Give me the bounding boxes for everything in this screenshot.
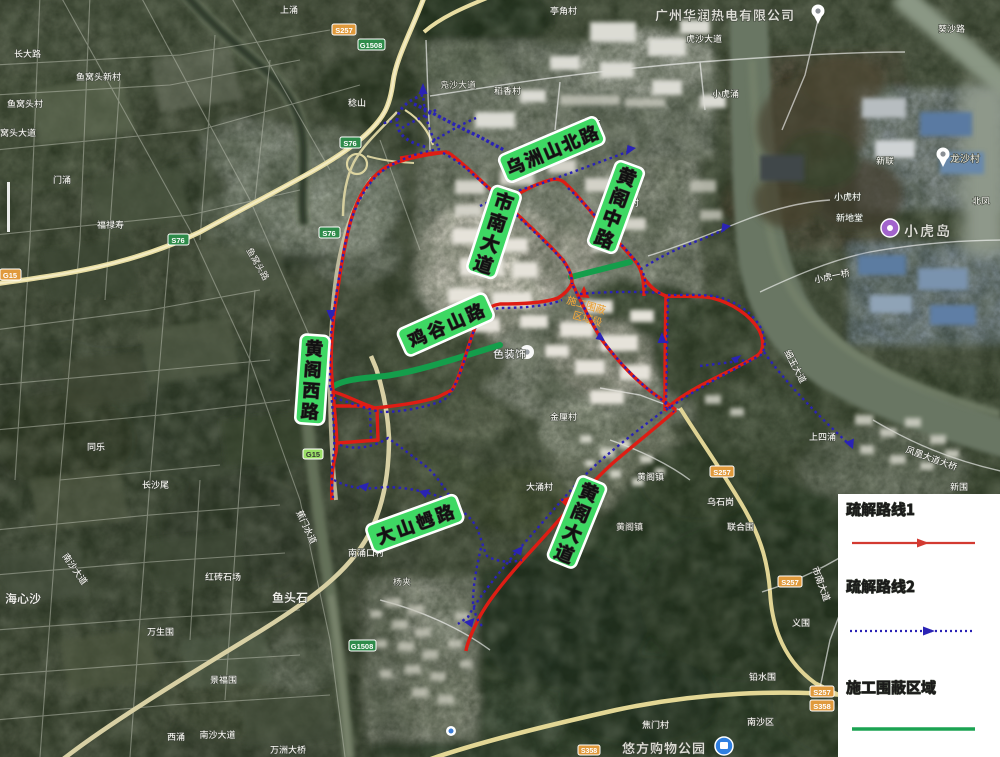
svg-text:S257: S257 bbox=[335, 26, 353, 35]
svg-text:S76: S76 bbox=[322, 229, 335, 238]
svg-text:G15: G15 bbox=[3, 271, 17, 280]
svg-text:S358: S358 bbox=[581, 748, 597, 755]
svg-text:G1508: G1508 bbox=[360, 41, 383, 50]
svg-text:S257: S257 bbox=[713, 468, 731, 477]
svg-text:S257: S257 bbox=[813, 688, 831, 697]
svg-text:S76: S76 bbox=[343, 139, 356, 148]
svg-text:S358: S358 bbox=[813, 702, 831, 711]
svg-text:S76: S76 bbox=[171, 236, 184, 245]
svg-text:G15: G15 bbox=[306, 450, 320, 459]
svg-text:G1508: G1508 bbox=[351, 642, 374, 651]
svg-text:S257: S257 bbox=[781, 578, 799, 587]
